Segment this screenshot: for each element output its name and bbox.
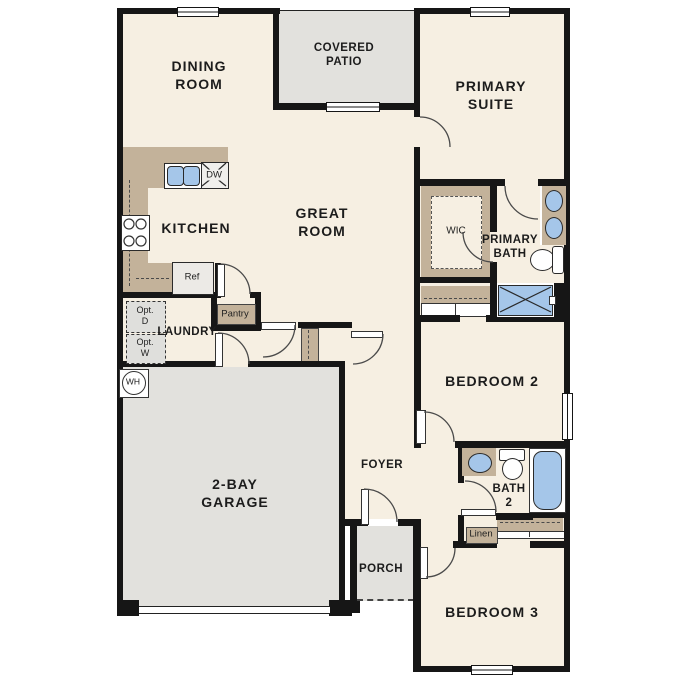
window-dining	[177, 7, 219, 17]
wall-bedroom3-top-right	[530, 541, 570, 548]
primary-shower-head	[549, 296, 556, 305]
window-primary-suite	[470, 7, 510, 17]
bedroom2-door-panel	[416, 410, 426, 444]
wall-wic-right-lower	[490, 262, 497, 322]
linen-label: Linen	[469, 529, 492, 540]
bath2-sink	[468, 453, 492, 473]
patio-slider-door	[326, 102, 380, 112]
bedroom3-closet-doors	[497, 531, 565, 539]
wall-garage-top-right	[248, 361, 345, 367]
kitchen-label: KITCHEN	[161, 219, 230, 237]
dw-label: DW	[205, 170, 223, 181]
wall-bath2-hall-lower	[458, 515, 464, 541]
primary-bath-label: PRIMARYBATH	[482, 233, 538, 261]
garage-door	[139, 606, 330, 614]
bedroom3-closet-dashed	[500, 522, 560, 523]
floor-foyer	[345, 367, 414, 519]
bedroom2-closet-shelf	[421, 286, 490, 303]
bedroom3-closet-door-split	[529, 531, 530, 537]
primary-shower	[498, 285, 553, 316]
wall-garage-stub-left	[117, 600, 139, 616]
opt-washer-label: Opt.W	[136, 337, 153, 359]
primary-toilet-tank	[552, 246, 564, 274]
wall-bedroom2-bottom	[455, 441, 570, 448]
wall-exterior-right	[564, 8, 570, 672]
bedroom2-closet-dashed	[424, 298, 487, 299]
porch-label: PORCH	[359, 562, 403, 576]
opt-dryer-label: Opt.D	[136, 305, 153, 327]
window-bedroom2	[562, 393, 573, 440]
bedroom3-door-panel	[420, 547, 428, 579]
coat-closet-door-panel	[351, 331, 383, 338]
primary-sink-2	[545, 217, 563, 239]
wall-bedroom2-top-left	[414, 315, 460, 322]
wall-pantry-bottom	[211, 325, 261, 331]
bath2-tub	[533, 451, 562, 510]
dining-room-label: DININGROOM	[172, 57, 227, 93]
wall-suite-bath-divider	[414, 179, 505, 186]
porch-dashed-edge	[357, 599, 414, 604]
bedroom2-closet-door-split	[455, 303, 456, 315]
wall-wic-bottom	[414, 277, 497, 283]
stove	[121, 215, 150, 251]
wall-garage-right	[339, 361, 345, 613]
wall-wic-right-upper	[490, 186, 497, 232]
coat-closet	[301, 328, 319, 363]
ref-label: Ref	[185, 272, 200, 283]
wall-exterior-left	[117, 8, 123, 613]
wall-suite-bath-divider-right	[538, 179, 564, 186]
garage-label: 2-BAYGARAGE	[201, 475, 268, 511]
bedroom3-label: BEDROOM 3	[445, 603, 539, 621]
laundry-door-panel	[261, 322, 296, 330]
kitchen-counter-dashed-h	[136, 278, 169, 279]
wall-porch-left	[350, 519, 357, 611]
wall-porch-top-right	[398, 519, 415, 526]
bath2-toilet-bowl	[502, 458, 523, 480]
floor-plan: DININGROOM COVEREDPATIO PRIMARYSUITE KIT…	[0, 0, 687, 687]
wall-coat-closet-top	[298, 322, 352, 328]
wall-porch-bedroom3-left	[413, 519, 421, 672]
foyer-label: FOYER	[361, 458, 403, 472]
bedroom2-label: BEDROOM 2	[445, 372, 539, 390]
wall-porch-stub	[347, 601, 360, 613]
window-bedroom3	[471, 665, 513, 675]
bath2-door-panel	[461, 509, 496, 516]
water-heater-label: WH	[126, 378, 140, 387]
primary-sink-1	[545, 190, 563, 212]
wall-bath2-bottom	[496, 513, 533, 520]
kitchen-sink-basin-right	[183, 166, 200, 186]
wic-label: WIC	[446, 226, 465, 237]
wall-patio-left	[273, 8, 279, 110]
pantry-door-panel	[217, 264, 225, 297]
coat-closet-dashed	[308, 330, 309, 359]
pantry-label: Pantry	[221, 309, 248, 320]
great-room-label: GREATROOM	[296, 204, 349, 240]
wall-spine-upper	[414, 8, 420, 117]
laundry-label: LAUNDRY	[157, 325, 216, 339]
primary-suite-label: PRIMARYSUITE	[455, 77, 526, 113]
front-door-panel	[361, 489, 369, 525]
covered-patio-label: COVEREDPATIO	[314, 41, 374, 69]
wall-spine-mid	[414, 147, 420, 322]
bath2-label: BATH2	[492, 482, 525, 510]
kitchen-sink-basin-left	[167, 166, 184, 186]
